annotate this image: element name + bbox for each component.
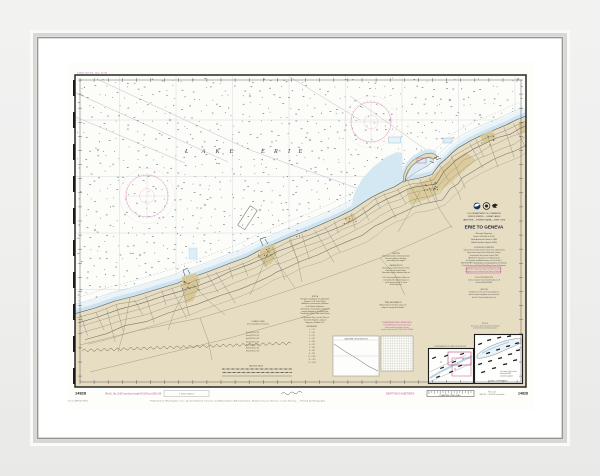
svg-text:CONTINUATION OF LINES OF POSIT: CONTINUATION OF LINES OF POSITION <box>434 345 467 348</box>
svg-text:12 — 39.4: 12 — 39.4 <box>309 362 316 364</box>
svg-text:North American Datum of 1983: North American Datum of 1983 <box>471 238 497 241</box>
svg-text:E: E <box>298 148 303 155</box>
svg-text:LAKE ERIE CROSS SECTION: LAKE ERIE CROSS SECTION <box>344 338 368 341</box>
svg-text:1 — 3.3: 1 — 3.3 <box>309 329 314 331</box>
svg-text:Commander, Ninth Coast Guard D: Commander, Ninth Coast Guard District <box>300 312 330 315</box>
svg-text:(World Geodetic System 1984): (World Geodetic System 1984) <box>471 241 497 244</box>
svg-text:Mercator Projection: Mercator Projection <box>476 232 492 235</box>
svg-text:the U.S. Coast Guard Light Lis: the U.S. Coast Guard Light Lists <box>472 296 496 299</box>
svg-text:particularly at the edges.: particularly at the edges. <box>387 259 406 262</box>
svg-text:AUTHORITIES: Hydrography and t: AUTHORITIES: Hydrography and topography … <box>461 262 507 265</box>
svg-text:4 — 13.1: 4 — 13.1 <box>309 338 315 340</box>
svg-text:9 — 29.5: 9 — 29.5 <box>309 353 315 355</box>
svg-text:DEPTHS IN METERS: DEPTHS IN METERS <box>386 392 414 396</box>
svg-text:14828 24th Ed., Mar. 31/08: 14828 24th Ed., Mar. 31/08 <box>77 72 108 75</box>
svg-text:For Symbols and Abbreviations,: For Symbols and Abbreviations, see Chart… <box>466 259 502 262</box>
svg-text:NAD 83 — WGS 84 compatible: NAD 83 — WGS 84 compatible <box>479 393 504 396</box>
svg-text:8 — 26.2: 8 — 26.2 <box>309 350 315 352</box>
svg-text:subject to seasonal fluctuatio: subject to seasonal fluctuation. <box>381 306 405 309</box>
svg-text:R: R <box>273 148 278 155</box>
svg-text:HEIGHTS in feet above Low Wate: HEIGHTS in feet above Low Water Datum <box>468 256 500 259</box>
svg-text:METERS/FEET: METERS/FEET <box>307 326 318 328</box>
svg-text:K: K <box>215 148 221 155</box>
svg-text:CAUTION: CAUTION <box>480 288 488 291</box>
svg-text:Limitations on the use of radi: Limitations on the use of radio signals … <box>469 291 500 294</box>
svg-text:NOTE D: NOTE D <box>482 323 489 325</box>
svg-text:Lines of position are shown at: Lines of position are shown at <box>247 322 270 325</box>
svg-text:Erie 42°08' 0.2 0.3: Erie 42°08' 0.2 0.3 <box>246 344 259 346</box>
svg-text:Erie 42°08' 0.2 0.3: Erie 42°08' 0.2 0.3 <box>246 351 259 353</box>
svg-text:Information may be obtained fr: Information may be obtained from the <box>382 271 410 274</box>
svg-text:Erie 42°08' 0.2 0.3: Erie 42°08' 0.2 0.3 <box>246 338 259 340</box>
svg-text:5 — 16.4: 5 — 16.4 <box>309 341 315 343</box>
svg-text:LAKE ERIE — PENNSYLVANIA — NEW: LAKE ERIE — PENNSYLVANIA — NEW YORK <box>463 219 506 222</box>
svg-text:above mean water level at Rimo: above mean water level at Rimouski, Queb… <box>467 251 501 254</box>
svg-text:U.S. DEPARTMENT OF COMMERCE: U.S. DEPARTMENT OF COMMERCE <box>467 212 501 215</box>
svg-text:Contact nearest Coast Guard fa: Contact nearest Coast Guard facility or … <box>468 279 501 282</box>
svg-text:11 — 36.1: 11 — 36.1 <box>309 359 316 361</box>
svg-text:NAUTICAL MILES: NAUTICAL MILES <box>249 365 264 368</box>
svg-text:0 16920 14828 5: 0 16920 14828 5 <box>179 394 195 396</box>
svg-text:2 — 6.6: 2 — 6.6 <box>309 332 314 334</box>
svg-text:14828: 14828 <box>518 392 528 396</box>
svg-text:Erie 42°08' 0.2 0.3: Erie 42°08' 0.2 0.3 <box>246 332 259 334</box>
svg-text:Erie 42°08' 0.2 0.3: Erie 42°08' 0.2 0.3 <box>246 335 259 337</box>
svg-text:S.T.D. APRCH PNCL: S.T.D. APRCH PNCL <box>68 400 89 403</box>
svg-text:toll free 800-424-8802: toll free 800-424-8802 <box>476 281 493 284</box>
svg-text:Additions or revisions are pub: Additions or revisions are published <box>302 302 329 305</box>
svg-text:6 — 19.7: 6 — 19.7 <box>309 344 315 346</box>
svg-text:E: E <box>229 148 234 155</box>
svg-text:ERIE TO GENEVA: ERIE TO GENEVA <box>465 225 504 230</box>
svg-text:L: L <box>184 148 189 155</box>
svg-text:Published at Washington, D.C.: Published at Washington, D.C. by the Nat… <box>150 400 325 403</box>
svg-text:Scale 1:120,000 at 42°05': Scale 1:120,000 at 42°05' <box>473 235 495 238</box>
svg-text:aids to marine navigation can: aids to marine navigation can be found i… <box>469 293 500 296</box>
svg-text:7 — 23.0: 7 — 23.0 <box>309 347 315 349</box>
svg-text:A: A <box>201 148 206 155</box>
svg-text:Erie 42°08' 0.2 0.3: Erie 42°08' 0.2 0.3 <box>246 341 259 343</box>
svg-text:Erie 42°08' 0.2 0.3: Erie 42°08' 0.2 0.3 <box>246 348 259 350</box>
svg-text:reduced to Low Water Datum 173: reduced to Low Water Datum 173.5 metres … <box>463 249 505 252</box>
svg-text:International Great Lakes Datu: International Great Lakes Datum 1985 <box>470 254 499 257</box>
svg-text:E: E <box>260 148 265 155</box>
svg-text:Engineers in Buffalo, N.Y.: Engineers in Buffalo, N.Y. <box>305 321 325 324</box>
svg-text:10 — 32.8: 10 — 32.8 <box>309 356 316 358</box>
svg-text:Guard Light List.: Guard Light List. <box>390 283 403 286</box>
svg-text:24th Ed., Mar. 31/08 Correcti: 24th Ed., Mar. 31/08 Corrections through… <box>105 393 162 396</box>
svg-text:14828: 14828 <box>75 391 87 396</box>
svg-text:UNITED STATES — GREAT LAKES: UNITED STATES — GREAT LAKES <box>468 215 501 218</box>
svg-text:3 — 9.8: 3 — 9.8 <box>309 335 314 337</box>
